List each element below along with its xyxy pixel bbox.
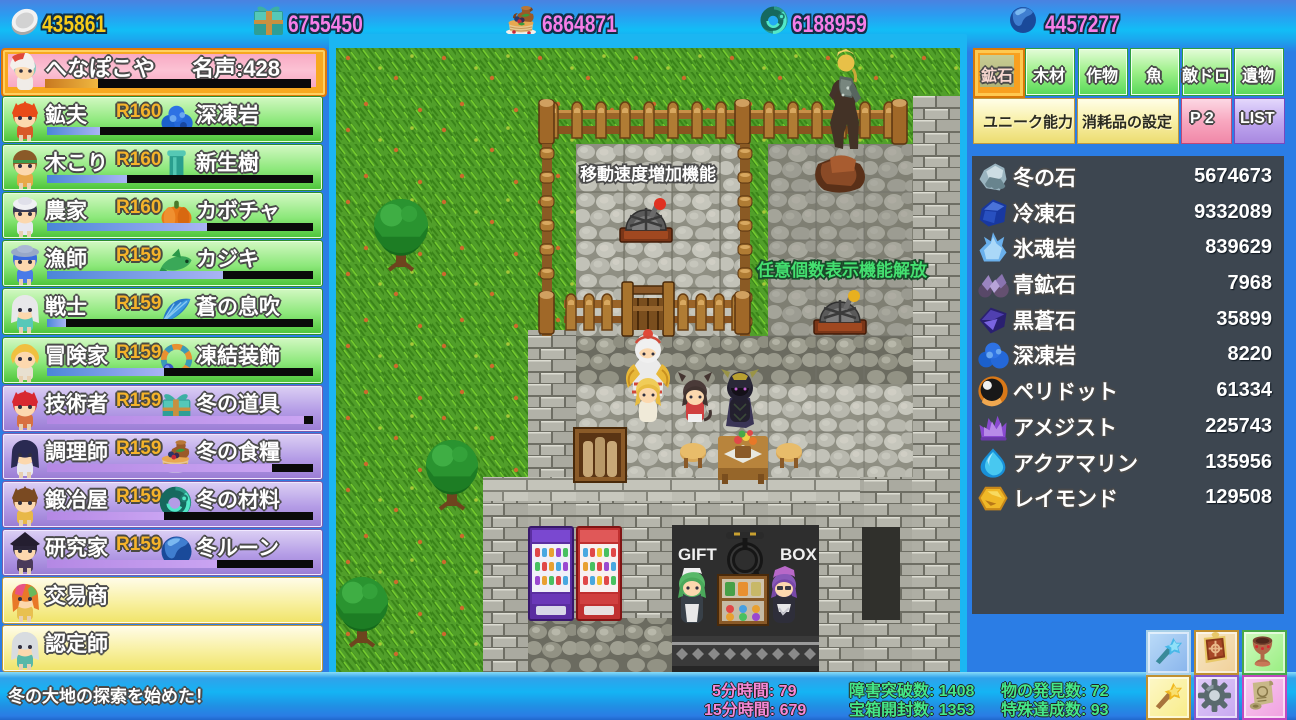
svg-text:GIFT: GIFT xyxy=(678,545,717,564)
svg-text:BOX: BOX xyxy=(780,545,818,564)
svg-text:任意個数表示機能解放: 任意個数表示機能解放 xyxy=(756,260,928,280)
svg-text:移動速度増加機能: 移動速度増加機能 xyxy=(580,164,716,184)
